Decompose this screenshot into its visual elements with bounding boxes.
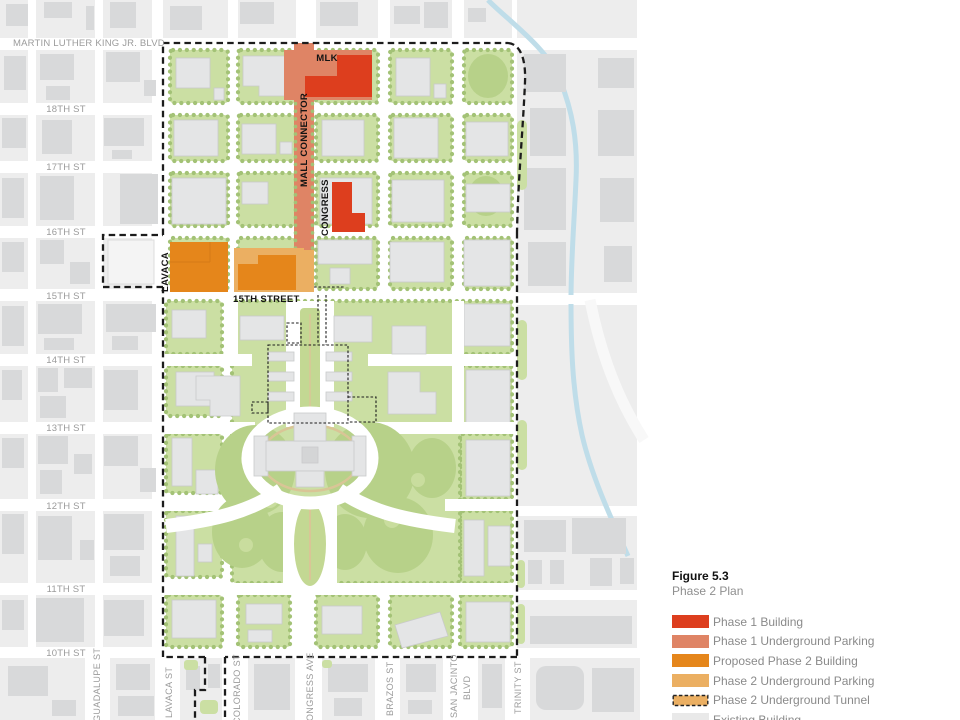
legend-panel: Figure 5.3 Phase 2 Plan Phase 1 Building… bbox=[672, 569, 952, 720]
street-label-15th: 15TH ST bbox=[46, 291, 85, 302]
legend-item-phase1-parking: Phase 1 Underground Parking bbox=[672, 632, 952, 652]
site-label-congress: CONGRESS bbox=[320, 179, 331, 236]
legend-swatch-phase1-parking bbox=[672, 635, 709, 648]
creek-bridge bbox=[566, 295, 579, 304]
legend-label: Phase 2 Underground Parking bbox=[713, 674, 874, 688]
site-label-mlk: MLK bbox=[316, 53, 337, 64]
legend-item-phase2-building: Proposed Phase 2 Building bbox=[672, 651, 952, 671]
street-label-11th: 11TH ST bbox=[47, 584, 86, 595]
phase2-building-lavaca bbox=[170, 242, 228, 292]
figure-page: MARTIN LUTHER KING JR. BLVD 18TH ST 17TH… bbox=[0, 0, 960, 720]
notch-building bbox=[108, 240, 154, 284]
street-label-18th: 18TH ST bbox=[46, 104, 85, 115]
legend-items: Phase 1 Building Phase 1 Underground Par… bbox=[672, 612, 952, 720]
street-label-10th: 10TH ST bbox=[46, 648, 85, 659]
legend-label: Existing Building bbox=[713, 713, 801, 720]
legend-swatch-phase2-parking bbox=[672, 674, 709, 687]
legend-label: Proposed Phase 2 Building bbox=[713, 654, 858, 668]
street-label-congress-ave: CONGRESS AVE bbox=[305, 652, 315, 720]
legend-swatch-phase2-building bbox=[672, 654, 709, 667]
legend-label: Phase 1 Underground Parking bbox=[713, 634, 874, 648]
street-label-13th: 13TH ST bbox=[46, 423, 85, 434]
street-label-16th: 16TH ST bbox=[46, 227, 85, 238]
street-label-lavaca-st: LAVACA ST bbox=[164, 667, 174, 718]
street-label-trinity: TRINITY ST bbox=[513, 661, 523, 714]
street-label-san-jacinto-blvd: BLVD bbox=[462, 675, 472, 700]
figure-number: Figure 5.3 bbox=[672, 569, 952, 583]
legend-swatch-existing-building bbox=[672, 713, 709, 720]
left-city-blocks bbox=[0, 38, 163, 659]
legend-label: Phase 1 Building bbox=[713, 615, 803, 629]
site-label-lavaca: LAVACA bbox=[160, 252, 171, 292]
street-label-14th: 14TH ST bbox=[46, 355, 85, 366]
street-label-colorado: COLORADO ST bbox=[232, 654, 242, 720]
legend-swatch-phase2-tunnel bbox=[672, 694, 709, 707]
street-label-brazos: BRAZOS ST bbox=[385, 661, 395, 716]
street-label-17th: 17TH ST bbox=[46, 162, 85, 173]
legend-swatch-phase1-building bbox=[672, 615, 709, 628]
legend-item-existing-building: Existing Building bbox=[672, 710, 952, 720]
street-label-guadalupe: GUADALUPE ST bbox=[92, 648, 102, 720]
legend-item-phase1-building: Phase 1 Building bbox=[672, 612, 952, 632]
street-label-mlk-blvd: MARTIN LUTHER KING JR. BLVD bbox=[13, 38, 165, 49]
figure-title: Phase 2 Plan bbox=[672, 584, 952, 598]
street-label-san-jacinto: SAN JACINTO bbox=[449, 654, 459, 718]
legend-item-phase2-parking: Phase 2 Underground Parking bbox=[672, 671, 952, 691]
site-label-mall-connector: MALL CONNECTOR bbox=[299, 93, 310, 187]
legend-label: Phase 2 Underground Tunnel bbox=[713, 693, 870, 707]
site-label-15th-street: 15TH STREET bbox=[233, 294, 300, 305]
street-label-12th: 12TH ST bbox=[46, 501, 85, 512]
legend-item-phase2-tunnel: Phase 2 Underground Tunnel bbox=[672, 690, 952, 710]
